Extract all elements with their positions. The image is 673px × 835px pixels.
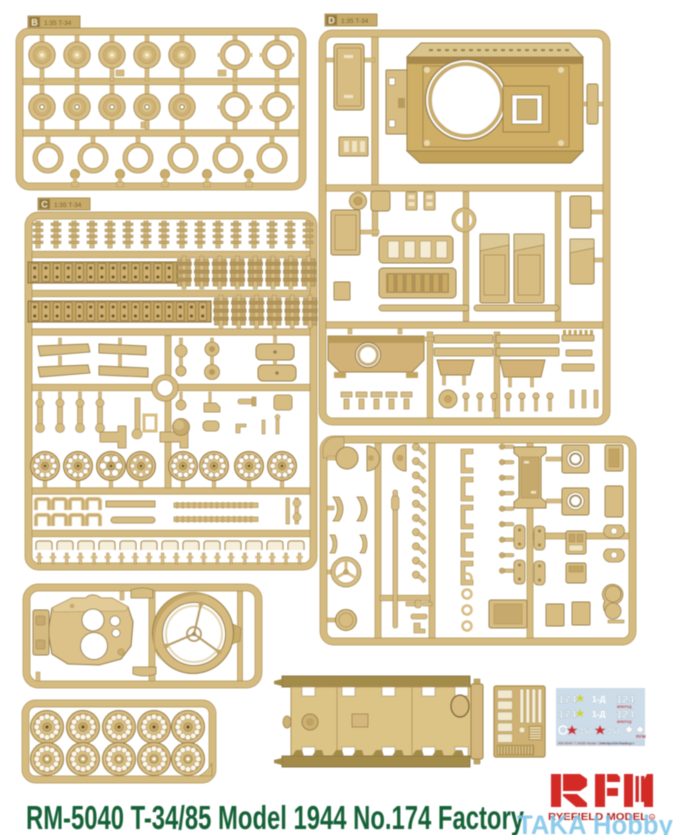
svg-text:1:35 T-34: 1:35 T-34 bbox=[44, 20, 72, 27]
svg-text:357: 357 bbox=[579, 727, 593, 736]
svg-text:174: 174 bbox=[558, 694, 577, 706]
svg-text:1-Д: 1-Д bbox=[592, 709, 606, 719]
svg-text:D: D bbox=[328, 16, 335, 26]
svg-text:1-Д: 1-Д bbox=[592, 694, 606, 704]
svg-text:174: 174 bbox=[558, 709, 577, 721]
svg-text:www.ryefield-model.com: www.ryefield-model.com bbox=[600, 742, 635, 746]
svg-text:B: B bbox=[31, 18, 38, 28]
svg-text:1:35 T-34: 1:35 T-34 bbox=[54, 202, 82, 209]
svg-text:TAKA Hobby: TAKA Hobby bbox=[517, 810, 673, 835]
svg-text:357: 357 bbox=[607, 727, 621, 736]
svg-text:RFM: RFM bbox=[636, 734, 646, 739]
svg-text:ВПЕРЕД: ВПЕРЕД bbox=[617, 720, 632, 724]
svg-text:RM-5040 T-34/85 Model 1944 No.: RM-5040 T-34/85 Model 1944 No.174 Factor… bbox=[26, 799, 524, 835]
svg-text:C: C bbox=[41, 200, 48, 210]
svg-text:1:35 T-34: 1:35 T-34 bbox=[341, 18, 369, 25]
